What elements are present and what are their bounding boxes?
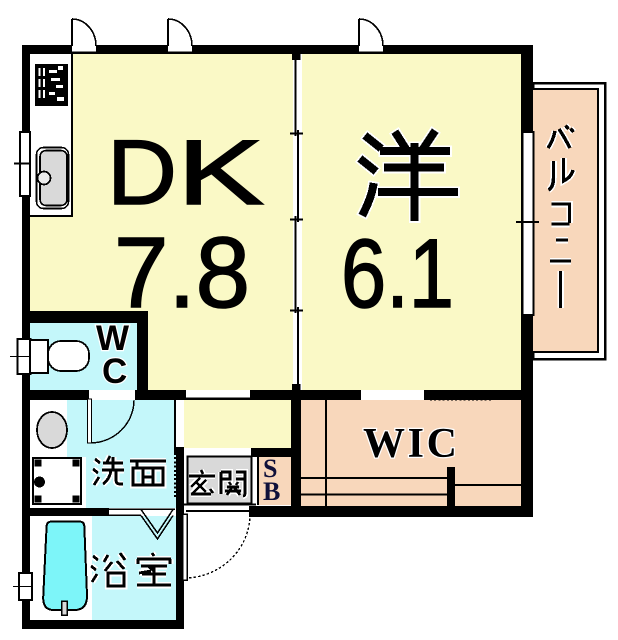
svg-text:B: B <box>263 477 280 506</box>
svg-text:WIC: WIC <box>363 421 457 467</box>
svg-text:C: C <box>102 352 127 391</box>
svg-text:6.1: 6.1 <box>341 219 454 328</box>
svg-text:K: K <box>177 122 264 224</box>
svg-text:D: D <box>107 122 177 224</box>
svg-text:7.8: 7.8 <box>114 217 250 329</box>
